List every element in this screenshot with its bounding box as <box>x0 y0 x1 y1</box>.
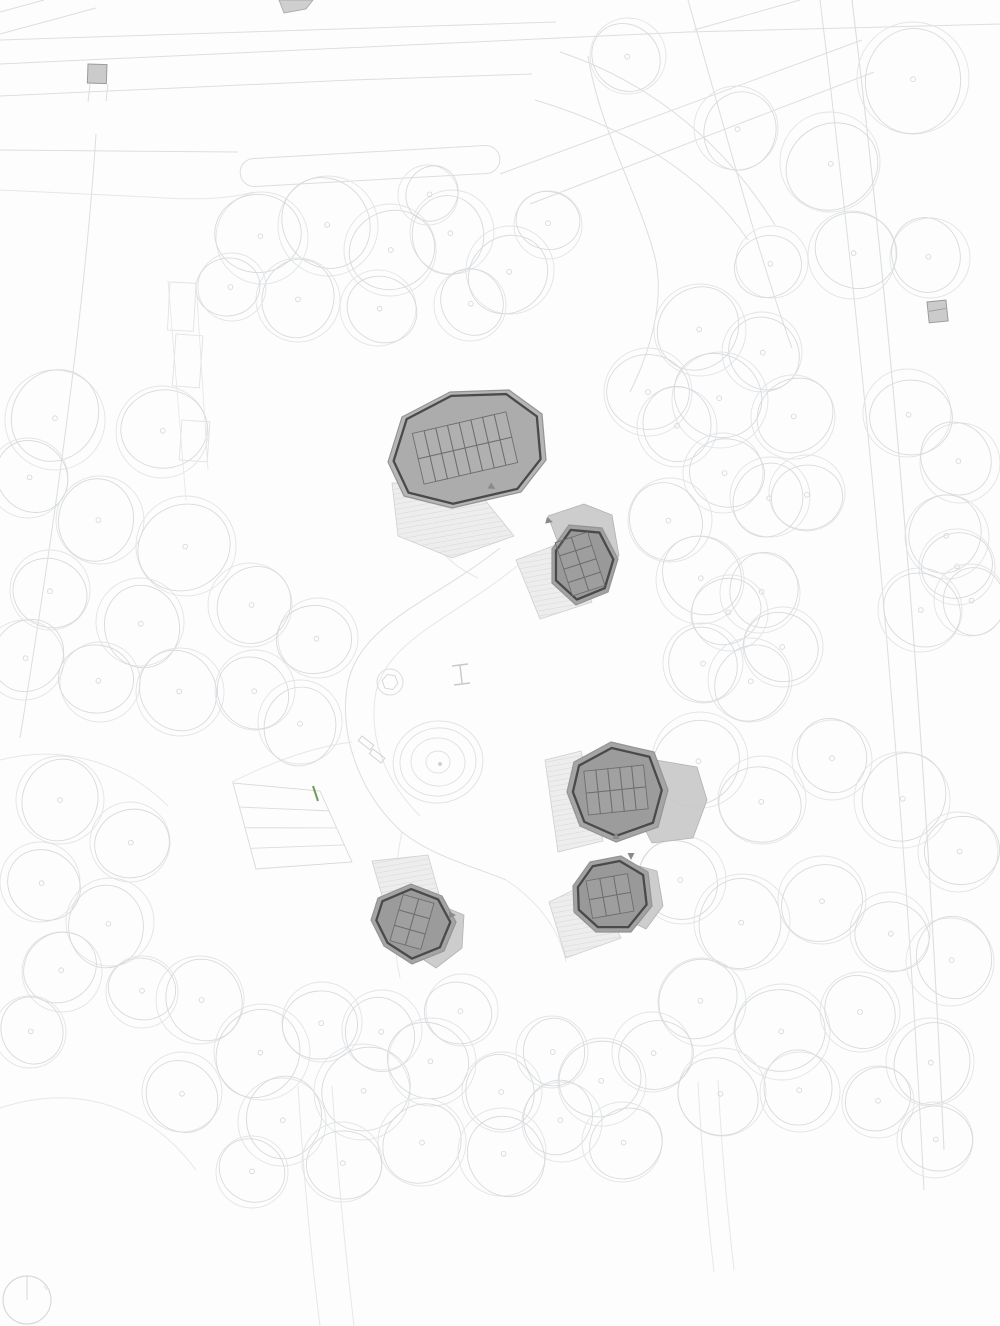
north-indicator <box>3 1276 51 1324</box>
tree-trunk-mark <box>258 1050 263 1055</box>
tree <box>409 190 494 277</box>
tree <box>844 890 940 983</box>
tree-trunk-mark <box>780 645 785 650</box>
tree-canopy-circle <box>890 218 970 298</box>
tree-crown-outline <box>452 219 564 330</box>
tree-crown-outline <box>844 890 940 983</box>
tree-crown-outline <box>726 226 811 307</box>
tree-trunk-mark <box>96 518 101 523</box>
tree-trunk-mark <box>48 589 53 594</box>
tree <box>338 198 447 302</box>
road-line <box>232 742 352 782</box>
tree-trunk-mark <box>805 492 810 497</box>
road-line <box>106 84 108 101</box>
tree-canopy-circle <box>672 352 768 448</box>
green-planting-mark <box>313 786 318 801</box>
tree-trunk-mark <box>199 998 204 1003</box>
tree <box>846 738 961 856</box>
tree-trunk-mark <box>558 1118 563 1123</box>
tree <box>832 1054 923 1144</box>
tree-trunk-mark <box>888 931 893 936</box>
tree-trunk-mark <box>830 756 835 761</box>
play-mound-contour <box>426 751 450 773</box>
road-line <box>0 22 556 40</box>
tree-trunk-mark <box>361 1088 366 1093</box>
tree <box>768 850 877 956</box>
tree-trunk-mark <box>96 678 101 683</box>
site-plan-drawing <box>0 0 1000 1326</box>
road-line <box>345 548 506 880</box>
tree-crown-outline <box>578 10 674 106</box>
tree-crown-outline <box>123 488 245 606</box>
tree-trunk-mark <box>250 1169 255 1174</box>
tree <box>192 253 266 321</box>
tree-trunk-mark <box>280 1118 285 1123</box>
tree <box>699 630 804 736</box>
tree-trunk-mark <box>27 475 32 480</box>
tree-crown-outline <box>913 523 1000 607</box>
tree <box>203 553 305 658</box>
tree <box>396 157 467 230</box>
road-line <box>694 0 800 30</box>
tree-trunk-mark <box>625 54 630 59</box>
tree-canopy-circle <box>434 269 506 341</box>
tree-canopy-circle <box>462 1052 542 1132</box>
play-mound-contour <box>409 736 467 789</box>
tree-trunk-mark <box>252 689 257 694</box>
trees-layer <box>0 10 1000 1216</box>
tree <box>131 1046 232 1147</box>
tree-canopy-circle <box>340 270 416 346</box>
tree-trunk-mark <box>911 77 916 82</box>
tree-crown-outline <box>868 379 953 457</box>
tree-trunk-mark <box>599 1078 604 1083</box>
tree-canopy-circle <box>694 874 790 970</box>
tree-crown-outline <box>409 193 487 278</box>
tree <box>452 1101 560 1211</box>
tree-trunk-mark <box>701 661 706 666</box>
tree-crown-outline <box>942 566 1000 637</box>
tree-trunk-mark <box>791 414 796 419</box>
pavilions-layer <box>371 390 707 968</box>
tree <box>661 620 745 709</box>
tree-trunk-mark <box>546 221 551 226</box>
terrace-step-line <box>250 845 344 848</box>
tree <box>264 160 388 286</box>
pavilion-4-skylight-grid <box>586 874 634 919</box>
tree <box>375 1009 482 1112</box>
play-mound-contour <box>388 715 489 809</box>
tree-trunk-mark <box>621 1140 626 1145</box>
tree <box>658 337 778 455</box>
pavilion-3-skylight-grid <box>584 765 648 815</box>
tree-trunk-mark <box>296 297 301 302</box>
tree-crown-outline <box>0 988 73 1073</box>
tree-trunk-mark <box>722 471 727 476</box>
bench <box>358 736 374 750</box>
tree-crown-outline <box>643 943 753 1054</box>
boardwalk-platform <box>172 334 203 388</box>
tree-crown-outline <box>417 975 498 1052</box>
tree-crown-outline <box>768 850 877 956</box>
tree-crown-outline <box>1 546 98 640</box>
tree-crown-outline <box>523 1018 585 1087</box>
pavilion-3 <box>545 742 707 860</box>
road-line <box>0 754 168 806</box>
tree <box>733 984 830 1080</box>
tree-trunk-mark <box>448 231 453 236</box>
tree <box>804 200 909 300</box>
tree-crown-outline <box>10 918 111 1018</box>
tree-trunk-mark <box>717 396 722 401</box>
tree-trunk-mark <box>759 799 764 804</box>
road-line <box>298 1086 320 1326</box>
tree <box>617 471 715 573</box>
tree <box>10 918 111 1018</box>
tree-trunk-mark <box>956 459 961 464</box>
tree <box>646 520 757 631</box>
play-mound-center <box>438 762 442 766</box>
skylight-cell <box>634 787 648 810</box>
tree-trunk-mark <box>820 899 825 904</box>
tree-trunk-mark <box>748 679 753 684</box>
tree <box>907 408 1000 509</box>
tree-canopy-circle <box>216 1136 288 1208</box>
tree-trunk-mark <box>876 1098 881 1103</box>
path-capsule <box>239 145 500 187</box>
tree <box>857 22 969 138</box>
tree-canopy-circle <box>0 438 68 518</box>
play-equipment-circle <box>377 669 403 695</box>
tree-crown-outline <box>253 251 343 347</box>
tree <box>430 258 515 346</box>
tree-crown-outline <box>920 812 1000 890</box>
play-mound-contour <box>396 723 481 801</box>
tree-trunk-mark <box>325 222 330 227</box>
tree-canopy-circle <box>514 191 582 259</box>
tree-crown-outline <box>86 800 177 886</box>
tree-trunk-mark <box>59 968 64 973</box>
tree-trunk-mark <box>468 301 473 306</box>
tree-trunk-mark <box>926 254 931 259</box>
tree-crown-outline <box>763 1049 834 1127</box>
tree-crown-outline <box>641 270 756 386</box>
tree <box>0 426 83 527</box>
tree-crown-outline <box>207 1126 298 1215</box>
tree-crown-outline <box>452 1101 560 1211</box>
tree-trunk-mark <box>128 840 133 845</box>
tree <box>0 988 73 1073</box>
tree-trunk-mark <box>739 920 744 925</box>
tree-trunk-mark <box>458 1009 463 1014</box>
tree-crown-outline <box>663 1042 774 1151</box>
tree-crown-outline <box>733 987 827 1073</box>
tree <box>663 1042 774 1151</box>
tree-trunk-mark <box>675 423 680 428</box>
tree <box>906 909 1000 1006</box>
tree <box>641 270 756 386</box>
tree-canopy-circle <box>90 802 170 882</box>
tree <box>610 1011 703 1099</box>
tree-trunk-mark <box>797 1088 802 1093</box>
tree-canopy-circle <box>857 22 969 134</box>
pavilion-5 <box>371 855 464 968</box>
tree-trunk-mark <box>550 1050 555 1055</box>
tree <box>913 523 1000 607</box>
tree-trunk-mark <box>140 988 145 993</box>
tree-canopy-circle <box>654 284 746 376</box>
tree-trunk-mark <box>379 1029 384 1034</box>
tree <box>0 835 94 935</box>
bench <box>369 749 385 763</box>
road-line <box>535 100 748 240</box>
tree-crown-outline <box>606 354 690 430</box>
tree <box>760 1049 840 1132</box>
tree <box>643 943 753 1054</box>
tree <box>459 1048 542 1136</box>
tree <box>0 605 78 706</box>
tree-trunk-mark <box>851 251 856 256</box>
tree-trunk-mark <box>779 1029 784 1034</box>
tree-trunk-mark <box>858 1010 863 1015</box>
tree-crown-outline <box>658 337 778 455</box>
road-line <box>0 0 44 12</box>
tree-trunk-mark <box>928 1060 933 1065</box>
tree-trunk-mark <box>258 234 263 239</box>
tree-trunk-mark <box>228 285 233 290</box>
tree-trunk-mark <box>183 544 188 549</box>
tree-trunk-mark <box>697 327 702 332</box>
tree <box>604 348 692 436</box>
tree <box>96 578 187 674</box>
tree <box>883 1012 981 1115</box>
road-line <box>0 74 532 96</box>
tree-trunk-mark <box>28 1029 33 1034</box>
tree <box>550 1031 651 1127</box>
tree-trunk-mark <box>58 798 63 803</box>
tree-canopy-circle <box>590 18 666 94</box>
tree-trunk-mark <box>53 416 58 421</box>
tree <box>786 707 879 803</box>
tree-canopy-circle <box>637 387 717 467</box>
play-equipment-hexagon <box>382 674 398 689</box>
tree-trunk-mark <box>735 127 740 132</box>
tree <box>116 386 211 478</box>
beam-play-element <box>452 664 470 685</box>
tree <box>417 974 498 1051</box>
tree-crown-outline <box>10 748 109 852</box>
tree <box>679 566 773 658</box>
tree <box>726 226 811 307</box>
tree-trunk-mark <box>760 350 765 355</box>
tree-crown-outline <box>646 520 757 631</box>
skylight-cell <box>614 874 631 895</box>
tree <box>711 756 808 850</box>
tree-crown-outline <box>661 620 745 709</box>
boardwalk-edge <box>196 282 208 470</box>
tree-trunk-mark <box>698 998 703 1003</box>
tree-crown-outline <box>124 636 231 746</box>
tree-trunk-mark <box>106 921 111 926</box>
tree <box>86 800 177 886</box>
tree-crown-outline <box>908 909 999 1006</box>
tree-trunk-mark <box>428 1059 433 1064</box>
tree-canopy-circle <box>96 578 184 666</box>
tree <box>0 353 116 477</box>
tree-trunk-mark <box>666 518 671 523</box>
tree-canopy-circle <box>658 958 746 1046</box>
tree-trunk-mark <box>768 261 773 266</box>
tree-trunk-mark <box>678 878 683 883</box>
skylight-cell <box>632 765 646 788</box>
tree <box>274 598 358 678</box>
tree-crown-outline <box>459 1048 541 1136</box>
tree-trunk-mark <box>39 881 44 886</box>
stepped-terrace <box>233 783 352 869</box>
tree <box>452 219 564 330</box>
tree <box>207 1126 298 1215</box>
tree-canopy-circle <box>730 457 810 537</box>
tree <box>335 263 430 356</box>
tree <box>516 1016 588 1088</box>
tree-trunk-mark <box>933 1137 938 1142</box>
tree-canopy-circle <box>398 165 458 225</box>
tree-trunk-mark <box>249 603 254 608</box>
tree-canopy-circle <box>720 553 800 633</box>
tree-trunk-mark <box>319 1021 324 1026</box>
tree-canopy-circle <box>604 348 692 436</box>
tree-canopy-circle <box>743 607 823 687</box>
tree-crown-outline <box>860 24 966 139</box>
tree-crown-outline <box>0 353 116 477</box>
tree-crown-outline <box>0 605 78 706</box>
tree-trunk-mark <box>949 958 954 963</box>
tree-canopy-circle <box>342 990 422 1070</box>
pavilion-3-entrance-arrow <box>628 853 635 860</box>
tree-canopy-circle <box>208 563 292 647</box>
tree-trunk-mark <box>298 721 303 726</box>
tree-crown-outline <box>69 885 144 968</box>
tree-crown-outline <box>338 198 447 302</box>
tree-trunk-mark <box>177 689 182 694</box>
tree <box>863 369 954 457</box>
tree-canopy-circle <box>344 204 436 296</box>
skylight-cell <box>617 892 634 913</box>
tree-trunk-mark <box>501 1151 506 1156</box>
tree-canopy-circle <box>897 1102 973 1178</box>
tree <box>153 947 254 1052</box>
road-line <box>500 40 862 174</box>
tree <box>575 1094 676 1194</box>
tree <box>307 1032 425 1146</box>
tree-trunk-mark <box>340 1161 345 1166</box>
tree <box>253 251 343 347</box>
tree <box>694 83 786 179</box>
tree-canopy-circle <box>780 112 880 212</box>
tree-canopy-circle <box>215 650 295 730</box>
road-line <box>0 150 238 152</box>
tree-canopy-circle <box>663 623 743 703</box>
tree-canopy-circle <box>22 932 102 1012</box>
tree <box>1 546 98 640</box>
tree-canopy-circle <box>886 1018 974 1106</box>
tree-trunk-mark <box>906 412 911 417</box>
tree-crown-outline <box>0 835 94 935</box>
tree <box>56 642 140 722</box>
tree-canopy-circle <box>378 1098 466 1186</box>
road-line <box>588 56 658 392</box>
tree-trunk-mark <box>314 636 319 641</box>
tree-canopy-circle <box>256 258 340 342</box>
tree-canopy-circle <box>116 386 208 478</box>
tree <box>124 636 231 746</box>
road-line <box>718 1080 734 1270</box>
tree <box>123 488 245 606</box>
tree-crown-outline <box>804 200 909 300</box>
tree-trunk-mark <box>918 608 923 613</box>
road-line <box>0 8 96 34</box>
tree <box>302 1122 384 1202</box>
tree-trunk-mark <box>180 1091 185 1096</box>
tree <box>714 303 813 404</box>
terrace-step-line <box>239 807 329 811</box>
tree-canopy-circle <box>56 476 144 564</box>
tree-canopy-circle <box>820 972 900 1052</box>
tree-crown-outline <box>832 1054 923 1144</box>
tree-canopy-circle <box>278 176 378 276</box>
pavilion-2 <box>516 504 619 619</box>
tree-trunk-mark <box>957 849 962 854</box>
landscape-features-layer <box>167 280 488 869</box>
tree-canopy-circle <box>582 1102 662 1182</box>
pavilion-4 <box>549 856 663 958</box>
tree <box>578 10 674 106</box>
tree-trunk-mark <box>696 759 701 764</box>
roads-layer <box>0 0 1000 1326</box>
tree-trunk-mark <box>377 306 382 311</box>
tree-trunk-mark <box>828 161 833 166</box>
road-line <box>698 1082 714 1272</box>
road-line <box>20 134 96 738</box>
road-line <box>0 1098 196 1170</box>
tree <box>10 748 109 852</box>
tree-crown-outline <box>714 303 813 404</box>
roof-fragment-top <box>279 0 313 13</box>
tree-trunk-mark <box>23 656 28 661</box>
road-line <box>0 190 254 199</box>
tree-trunk-mark <box>698 576 703 581</box>
symbols-layer <box>3 0 948 1324</box>
pavilion-1 <box>388 390 546 558</box>
tree-crown-outline <box>307 1032 425 1146</box>
tree <box>918 812 1000 892</box>
tree-canopy-circle <box>760 1052 840 1132</box>
tree-trunk-mark <box>160 428 165 433</box>
tree-canopy-circle <box>258 680 342 764</box>
road-line <box>88 84 90 102</box>
tree-trunk-mark <box>138 621 143 626</box>
tree-trunk-mark <box>900 796 905 801</box>
tree-canopy-circle <box>708 638 792 722</box>
tree-trunk-mark <box>420 1140 425 1145</box>
tree-canopy-circle <box>142 1052 222 1132</box>
tree-trunk-mark <box>646 390 651 395</box>
tree-trunk-mark <box>388 248 393 253</box>
tree-canopy-circle <box>734 984 830 1080</box>
tree-canopy-circle <box>16 756 104 844</box>
tree-trunk-mark <box>507 269 512 274</box>
site-plan-page <box>0 0 1000 1326</box>
